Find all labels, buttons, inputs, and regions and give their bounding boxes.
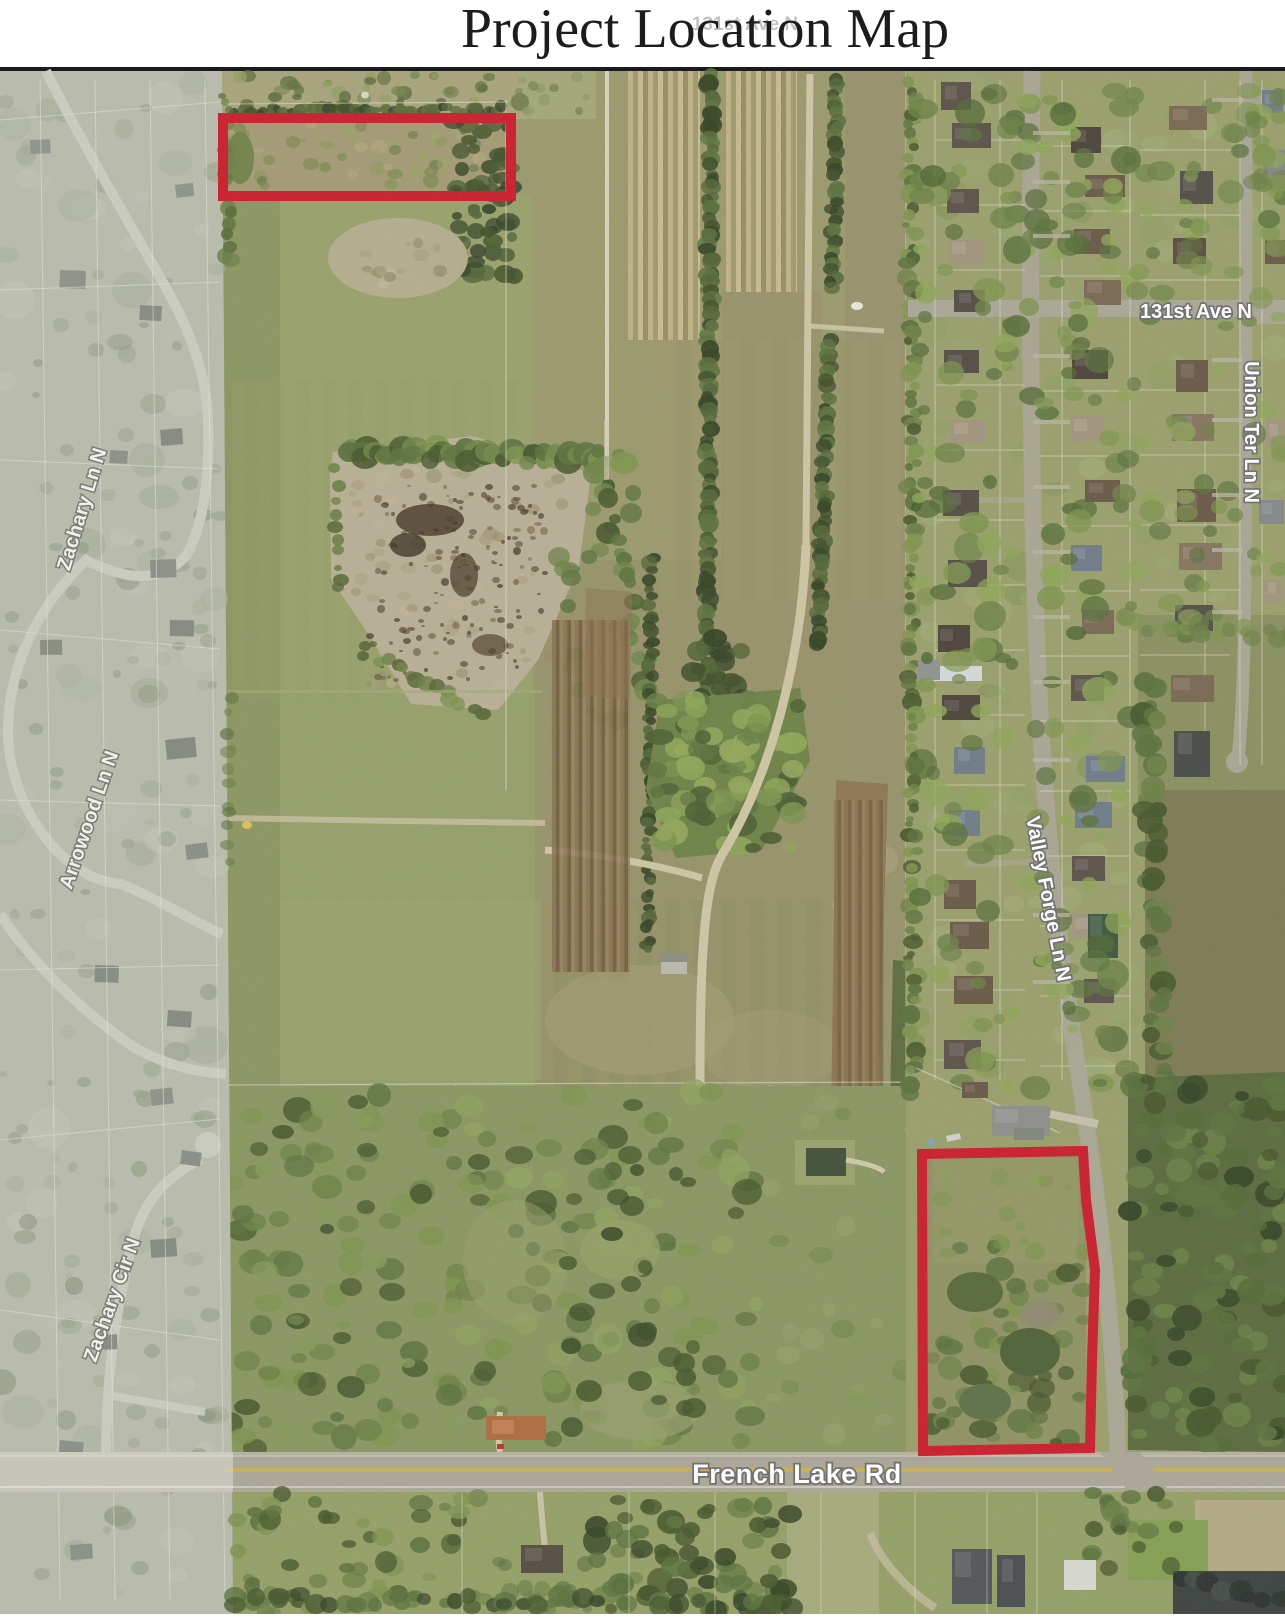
- svg-text:Project Location Map: Project Location Map: [461, 0, 949, 60]
